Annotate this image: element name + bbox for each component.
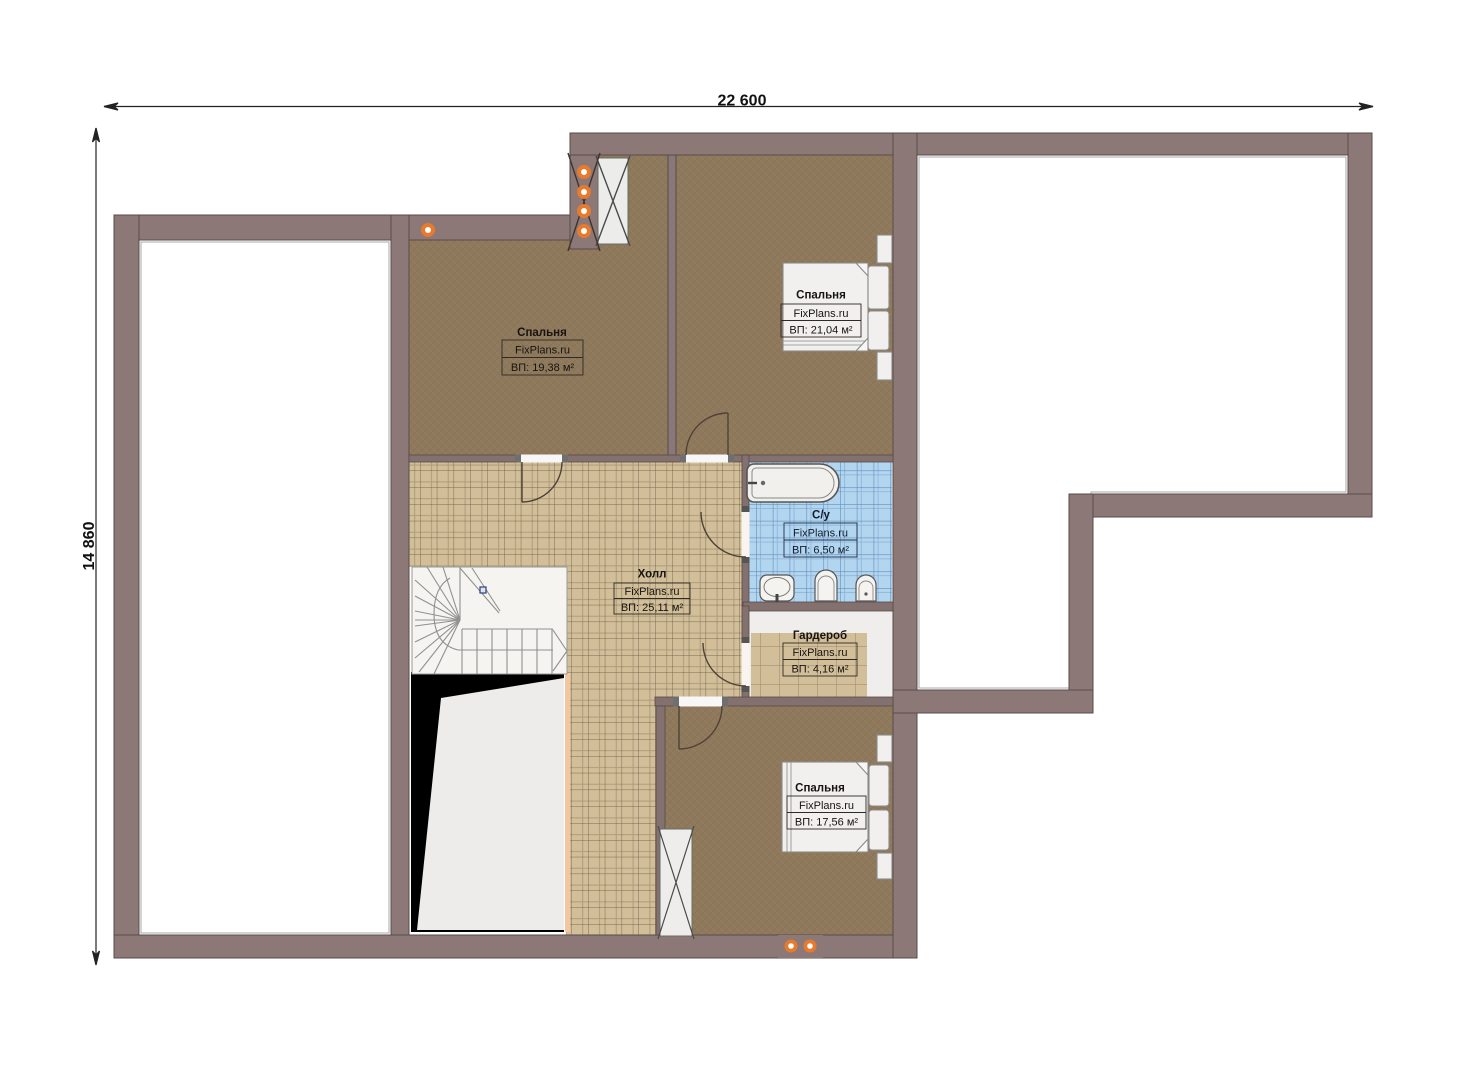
svg-text:FixPlans.ru: FixPlans.ru bbox=[793, 528, 848, 540]
svg-text:Спальня: Спальня bbox=[796, 290, 846, 302]
svg-text:Холл: Холл bbox=[638, 569, 667, 581]
svg-text:С/у: С/у bbox=[812, 510, 831, 522]
svg-text:FixPlans.ru: FixPlans.ru bbox=[793, 308, 848, 320]
svg-text:Спальня: Спальня bbox=[795, 783, 845, 795]
svg-text:ВП: 25,11 м²: ВП: 25,11 м² bbox=[621, 602, 684, 614]
svg-text:ВП: 21,04 м²: ВП: 21,04 м² bbox=[789, 325, 853, 337]
svg-text:Спальня: Спальня bbox=[517, 327, 567, 339]
svg-text:FixPlans.ru: FixPlans.ru bbox=[792, 647, 847, 659]
svg-text:ВП: 4,16 м²: ВП: 4,16 м² bbox=[791, 664, 848, 676]
svg-text:FixPlans.ru: FixPlans.ru bbox=[624, 586, 679, 598]
svg-text:ВП: 19,38 м²: ВП: 19,38 м² bbox=[511, 362, 575, 374]
svg-text:FixPlans.ru: FixPlans.ru bbox=[799, 800, 854, 812]
svg-text:Гардероб: Гардероб bbox=[793, 630, 847, 642]
svg-text:ВП: 17,56 м²: ВП: 17,56 м² bbox=[795, 817, 859, 829]
svg-text:22 600: 22 600 bbox=[718, 93, 767, 110]
svg-text:FixPlans.ru: FixPlans.ru bbox=[515, 345, 570, 357]
svg-text:14 860: 14 860 bbox=[81, 521, 98, 570]
svg-text:ВП: 6,50 м²: ВП: 6,50 м² bbox=[792, 545, 849, 557]
